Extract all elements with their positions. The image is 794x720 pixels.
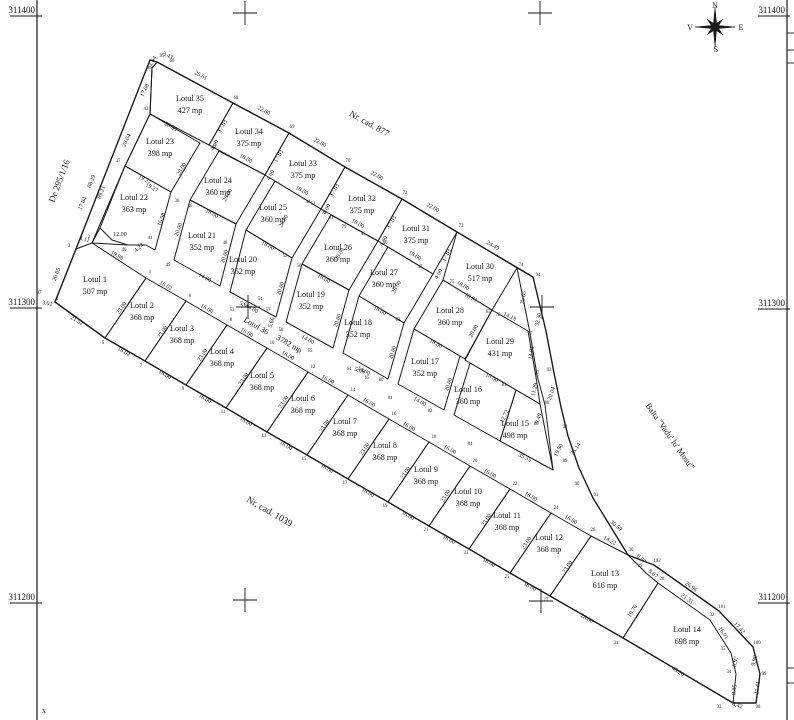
survey-point-number: 92	[563, 425, 568, 430]
lot-name-label: Lotul 3	[170, 324, 194, 333]
northing-label-right: 311200	[758, 592, 785, 602]
lot-area-label: 368 mp	[291, 406, 316, 415]
survey-point-number: 47	[418, 265, 423, 270]
lot-name-label: Lotul 34	[235, 127, 263, 136]
survey-point-number: 31	[614, 641, 619, 646]
lot-area-label: 517 mp	[468, 274, 493, 283]
survey-point-number: 36	[175, 199, 180, 204]
lot-area-label: 352 mp	[231, 267, 256, 276]
survey-point-number: 64	[347, 367, 352, 372]
survey-point-number: 26	[591, 528, 596, 533]
survey-point-number: 19	[383, 504, 388, 509]
lot-name-label: Lotul 11	[493, 511, 521, 520]
lot-name-label: Lotul 17	[411, 357, 439, 366]
cadastral-plan-drawing: 311400311300311200311400311300311200Lotu…	[0, 0, 794, 720]
lot-area-label: 375 mp	[237, 139, 262, 148]
lot-name-label: Lotul 2	[130, 301, 154, 310]
survey-point-number: 86	[534, 422, 539, 427]
lot-area-label: 352 mp	[190, 243, 215, 252]
survey-point-number: 42	[212, 145, 217, 150]
survey-point-number: 46	[188, 204, 193, 209]
survey-point-number: 95	[160, 54, 165, 59]
lot-name-label: Lotul 12	[535, 533, 563, 542]
northing-label-right: 311400	[758, 5, 785, 15]
lot-area-label: 431 mp	[488, 349, 513, 358]
survey-point-number: 71	[322, 211, 327, 216]
survey-point-number: 87	[535, 371, 540, 376]
lot-area-label: 363 mp	[122, 205, 147, 214]
lot-area-label: 368 mp	[130, 313, 155, 322]
survey-point-number: 25	[505, 575, 510, 580]
lot-name-label: Lotul 22	[120, 193, 148, 202]
compass-direction-label: E	[739, 23, 744, 32]
survey-point-number: 33	[717, 705, 722, 710]
lot-name-label: Lotul 4	[210, 347, 234, 356]
northing-label-right: 311300	[758, 298, 785, 308]
lot-name-label: Lotul 31	[402, 224, 430, 233]
lot-area-label: 368 mp	[414, 477, 439, 486]
lot-area-label: 398 mp	[148, 149, 173, 158]
lot-name-label: Lotul 20	[229, 255, 257, 264]
survey-point-number: 34	[727, 670, 732, 675]
survey-point-number: 17	[343, 481, 348, 486]
survey-point-number: 14	[351, 388, 356, 393]
survey-point-number: 83	[502, 383, 507, 388]
survey-point-number: 90	[575, 482, 580, 487]
survey-point-number: 102	[653, 559, 661, 564]
survey-point-number: 73	[459, 224, 464, 229]
survey-point-number: 94	[536, 273, 541, 278]
lot-area-label: 375 mp	[350, 206, 375, 215]
lot-name-label: Lotul 25	[259, 203, 287, 212]
survey-point-number: 70	[346, 159, 351, 164]
lot-name-label: Lotul 10	[454, 487, 482, 496]
survey-point-number: 11	[221, 410, 226, 415]
lot-name-label: Lotul 6	[291, 394, 315, 403]
survey-point-number: 99	[762, 672, 767, 677]
lot-area-label: 368 mp	[495, 523, 520, 532]
survey-point-number: 40	[122, 248, 127, 253]
lot-name-label: Lotul 19	[297, 290, 325, 299]
survey-point-number: 56	[297, 264, 302, 269]
northing-label-left: 311200	[8, 592, 35, 602]
survey-point-number: 69	[290, 125, 295, 130]
lot-name-label: Lotul 7	[333, 417, 357, 426]
survey-point-number: 27	[544, 598, 549, 603]
survey-point-number: 61	[329, 216, 334, 221]
survey-point-number: 55	[308, 349, 313, 354]
survey-point-number: 88	[545, 401, 550, 406]
survey-point-number: 68	[234, 96, 239, 101]
survey-point-number: 37	[116, 159, 121, 164]
lot-name-label: Lotul 23	[146, 137, 174, 146]
survey-point-number: 100	[753, 641, 761, 646]
compass-direction-label: S	[714, 45, 718, 54]
lot-name-label: Lotul 28	[436, 306, 464, 315]
northing-label-left: 311300	[8, 297, 35, 307]
survey-point-number: 76	[496, 313, 501, 318]
survey-point-number: 21	[424, 528, 429, 533]
lot-name-label: Lotul 29	[486, 337, 514, 346]
survey-point-number: 84	[468, 442, 473, 447]
lot-area-label: 368 mp	[210, 359, 235, 368]
survey-point-number: 22	[513, 482, 518, 487]
lot-name-label: Lotul 33	[289, 159, 317, 168]
sheet-background	[0, 0, 794, 720]
dimension-label: 12.00	[113, 232, 127, 238]
survey-point-number: 82	[428, 409, 433, 414]
lot-name-label: Lotul 24	[204, 176, 232, 185]
survey-point-number: 16	[392, 412, 397, 417]
lot-area-label: 360 mp	[438, 318, 463, 327]
survey-point-number: 41	[148, 236, 153, 241]
survey-point-number: 74	[519, 263, 524, 268]
lot-area-label: 368 mp	[456, 499, 481, 508]
lot-name-label: Lotul 32	[348, 194, 376, 203]
survey-point-number: 43	[144, 107, 149, 112]
compass-direction-label: N	[712, 1, 718, 10]
survey-point-number: 24	[554, 506, 559, 511]
survey-point-number: 28	[660, 577, 665, 582]
lot-area-label: 375 mp	[291, 171, 316, 180]
lot-name-label: Lotul 21	[188, 231, 216, 240]
survey-point-number: 52	[283, 254, 288, 259]
survey-point-number: 81	[388, 396, 393, 401]
lot-area-label: 616 mp	[593, 581, 618, 590]
lot-name-label: Lotul 13	[591, 569, 619, 578]
compass-direction-label: V	[687, 23, 693, 32]
lot-name-label: Lotul 30	[466, 262, 494, 271]
survey-point-number: 79	[342, 225, 347, 230]
survey-point-number: 57	[266, 308, 271, 313]
survey-point-number: 51	[311, 202, 316, 207]
survey-point-number: 15	[302, 457, 307, 462]
lot-area-label: 368 mp	[250, 383, 275, 392]
survey-point-number: 77	[528, 332, 533, 337]
survey-point-number: 93	[547, 368, 552, 373]
lot-name-label: Lotul 5	[250, 371, 274, 380]
survey-point-number: 49	[166, 263, 171, 268]
survey-point-number: 96	[147, 66, 152, 71]
lot-name-label: Lotul 14	[673, 625, 701, 634]
lot-name-label: Lotul 16	[454, 385, 482, 394]
survey-point-number: 20	[473, 459, 478, 464]
survey-point-number: 10	[270, 341, 275, 346]
lot-area-label: 368 mp	[170, 336, 195, 345]
lot-area-label: 352 mp	[413, 369, 438, 378]
survey-point-number: 50	[383, 241, 388, 246]
lot-area-label: 698 mp	[675, 637, 700, 646]
lot-area-label: 352 mp	[346, 330, 371, 339]
survey-point-number: 44	[306, 200, 311, 205]
survey-point-number: 12	[311, 365, 316, 370]
lot-area-label: 368 mp	[333, 429, 358, 438]
survey-point-number: 80	[379, 378, 384, 383]
lot-area-label: 507 mp	[83, 287, 108, 296]
survey-point-number: 18	[432, 435, 437, 440]
x-axis-marker: x	[42, 706, 46, 715]
survey-point-number: 89	[563, 459, 568, 464]
lot-area-label: 375 mp	[404, 236, 429, 245]
survey-point-number: 98	[756, 705, 761, 710]
lot-area-label: 498 mp	[503, 431, 528, 440]
survey-point-number: 32	[710, 613, 715, 618]
lot-area-label: 427 mp	[178, 106, 203, 115]
lot-name-label: Lotul 1	[83, 275, 107, 284]
survey-point-number: 66	[170, 59, 175, 64]
lot-name-label: Lotul 9	[414, 465, 438, 474]
northing-label-left: 311400	[8, 5, 35, 15]
dimension-label: 8.85	[731, 684, 738, 695]
survey-point-number: 101	[718, 605, 726, 610]
survey-point-number: 23	[464, 551, 469, 556]
survey-point-number: 97	[37, 291, 42, 296]
survey-point-number: 63	[396, 318, 401, 323]
survey-point-number: 45	[361, 232, 366, 237]
survey-point-number: 72	[403, 191, 408, 196]
survey-point-number: 35	[721, 647, 726, 652]
lot-name-label: Lotul 8	[373, 441, 397, 450]
survey-point-number: 53	[230, 308, 235, 313]
survey-point-number: 65	[365, 376, 370, 381]
lot-area-label: 368 mp	[373, 453, 398, 462]
lot-area-label: 368 mp	[537, 545, 562, 554]
lot-name-label: Lotul 18	[344, 318, 372, 327]
survey-point-number: 75	[450, 280, 455, 285]
lot-area-label: 360 mp	[456, 397, 481, 406]
survey-point-number: 13	[262, 434, 267, 439]
lot-name-label: Lotul 35	[176, 94, 204, 103]
survey-point-number: 54	[258, 297, 263, 302]
survey-point-number: 30	[629, 548, 634, 553]
survey-point-number: 85	[486, 310, 491, 315]
lot-area-label: 352 mp	[299, 302, 324, 311]
lot-name-label: Lotul 27	[370, 268, 398, 277]
survey-point-number: 48	[223, 241, 228, 246]
survey-point-number: 91	[594, 493, 599, 498]
survey-point-number: 29	[638, 564, 643, 569]
cadastral-plan-sheet: 311400311300311200311400311300311200Lotu…	[0, 0, 794, 720]
